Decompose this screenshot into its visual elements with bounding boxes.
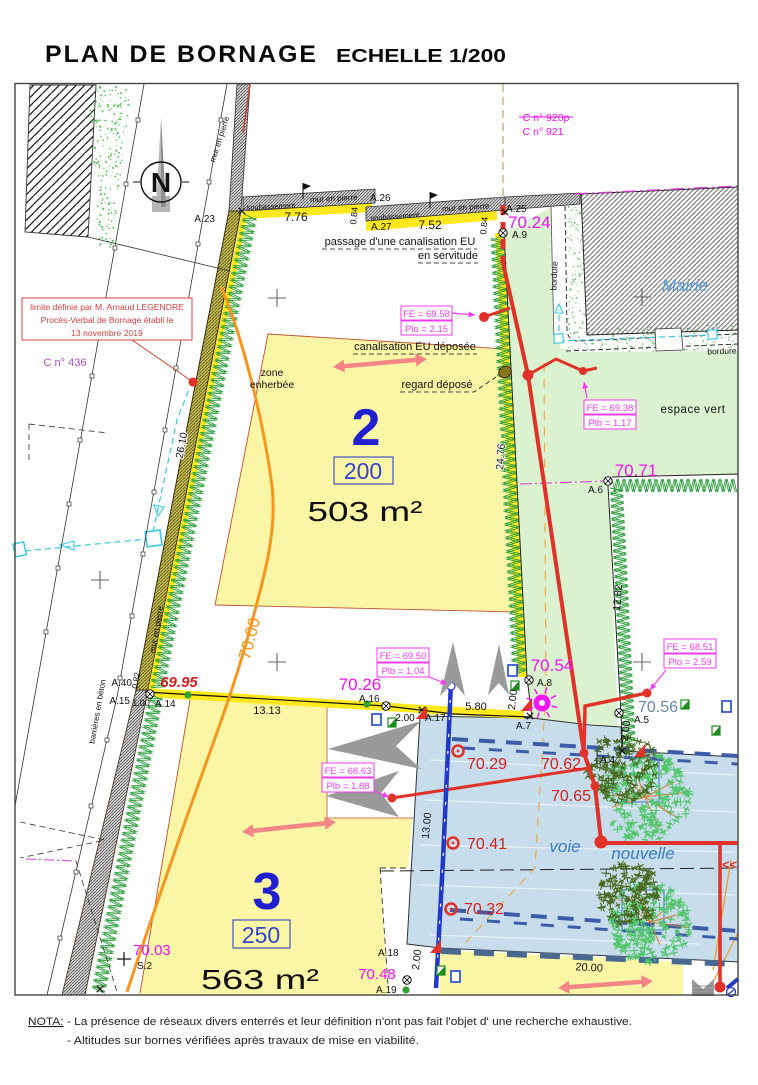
svg-text:FE = 68.51: FE = 68.51 [667,642,714,653]
svg-text:Mairie: Mairie [662,276,708,295]
svg-text:<<: << [722,857,738,872]
svg-text:PLAN DE BORNAGE: PLAN DE BORNAGE [45,41,318,68]
svg-text:Plb = 1.17: Plb = 1.17 [588,418,631,429]
svg-text:70.71: 70.71 [615,461,658,480]
svg-text:Plb = 1.04: Plb = 1.04 [381,666,424,677]
svg-text:12.82: 12.82 [611,584,625,611]
svg-text:A.16: A.16 [359,694,380,705]
svg-text:A.26: A.26 [370,193,391,204]
svg-text:Plo = 2.59: Plo = 2.59 [668,657,711,668]
svg-text:A.5: A.5 [634,715,649,726]
svg-text:13.13: 13.13 [253,705,281,717]
svg-text:7.76: 7.76 [284,210,308,224]
svg-text:70.32: 70.32 [464,901,504,918]
svg-text:Procès-Verbal de Bornage établ: Procès-Verbal de Bornage établi le [41,315,174,325]
svg-text:FE = 69.58: FE = 69.58 [403,309,450,320]
svg-text:FE = 69.50: FE = 69.50 [380,651,427,662]
svg-text:200: 200 [344,458,382,484]
svg-text:2.00: 2.00 [410,949,424,971]
svg-text:A.18: A.18 [378,948,399,959]
svg-text:Plb = 1.88: Plb = 1.88 [326,781,369,792]
svg-text:7.52: 7.52 [418,218,442,232]
svg-text:regard déposé: regard déposé [402,379,473,391]
svg-text:A.14: A.14 [155,699,176,710]
svg-text:- Altitudes sur bornes vérifié: - Altitudes sur bornes vérifiées après t… [67,1035,419,1047]
svg-text:C n° 436: C n° 436 [44,357,87,369]
svg-text:5.80: 5.80 [465,701,486,713]
svg-text:FE = 69.38: FE = 69.38 [587,403,634,414]
svg-text:FE = 68.63: FE = 68.63 [325,766,372,777]
svg-text:zone: zone [261,367,284,379]
svg-text:70.48: 70.48 [358,966,396,983]
svg-text:C n° 921: C n° 921 [523,126,564,138]
svg-text:2.00: 2.00 [619,720,633,742]
svg-text:A.40: A.40 [111,678,132,689]
svg-text:3: 3 [253,863,282,921]
svg-text:A.17: A.17 [425,713,446,724]
svg-text:A.15: A.15 [109,696,130,707]
svg-text:NOTA: - La présence de réseaux: NOTA: - La présence de réseaux divers en… [28,1016,632,1028]
svg-text:0.84: 0.84 [348,206,360,224]
svg-text:70.29: 70.29 [467,756,507,773]
svg-text:70.62: 70.62 [541,756,581,773]
svg-text:nouvelle: nouvelle [611,844,674,863]
svg-text:voie: voie [549,837,580,856]
svg-text:20.00: 20.00 [575,961,603,974]
svg-text:enherbée: enherbée [250,379,295,391]
svg-text:2.00: 2.00 [506,689,520,711]
svg-text:563 m²: 563 m² [201,964,319,995]
svg-text:0.84: 0.84 [478,216,490,234]
svg-text:A.7: A.7 [516,721,531,732]
svg-text:ECHELLE 1/200: ECHELLE 1/200 [336,46,506,66]
svg-text:en servitude: en servitude [418,250,478,262]
svg-text:70.41: 70.41 [467,836,507,853]
svg-text:espace vert: espace vert [661,404,726,416]
svg-text:A.4: A.4 [600,755,615,766]
svg-text:A.27: A.27 [371,222,392,233]
svg-text:70.03: 70.03 [133,942,171,959]
svg-text:limite définie par M. Arnaud L: limite définie par M. Arnaud LEGENDRE [30,302,184,312]
svg-text:70.65: 70.65 [551,788,591,805]
svg-text:A.6: A.6 [588,485,603,496]
svg-text:70.56: 70.56 [638,699,678,716]
svg-text:A.23: A.23 [194,214,215,225]
svg-text:S.2: S.2 [137,961,152,972]
svg-text:250: 250 [242,922,280,948]
svg-text:70.54: 70.54 [531,656,574,675]
svg-text:passage d'une canalisation EU: passage d'une canalisation EU [325,236,476,248]
svg-text:70.26: 70.26 [339,675,382,694]
svg-text:N: N [151,167,171,198]
svg-text:1.00: 1.00 [132,698,150,708]
svg-text:2: 2 [352,399,381,457]
svg-text:69.95: 69.95 [160,674,198,691]
svg-text:13 novembre 2019: 13 novembre 2019 [71,328,143,338]
svg-text:bordure: bordure [548,261,560,291]
svg-text:C n° 920p: C n° 920p [523,112,570,124]
svg-text:canalisation EU déposée: canalisation EU déposée [354,341,476,353]
svg-text:503 m²: 503 m² [308,496,423,527]
svg-text:70.24: 70.24 [508,213,551,232]
svg-text:2.00: 2.00 [395,713,415,724]
svg-text:A.8: A.8 [537,678,552,689]
svg-text:bordure: bordure [707,345,737,356]
svg-text:24.76: 24.76 [494,443,508,470]
svg-text:Plo = 2.15: Plo = 2.15 [405,324,448,335]
